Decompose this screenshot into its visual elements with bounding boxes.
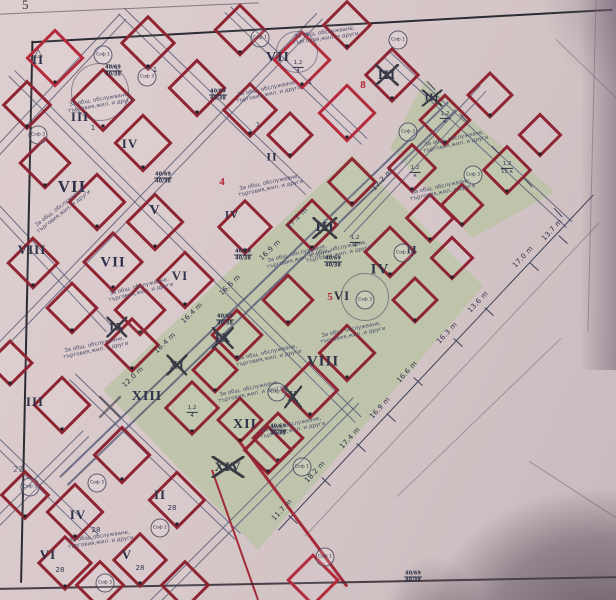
handwritten-red-number: 8 (360, 79, 366, 91)
transformer-station-label: Соф 1 (253, 36, 267, 41)
transformer-station-marker: Соф 2 (151, 519, 170, 538)
survey-point (249, 132, 252, 135)
survey-point (287, 321, 290, 324)
plot-number: II (32, 52, 44, 68)
survey-point (414, 319, 417, 322)
storey-fraction-marker-value: 1,2 (187, 405, 198, 413)
plot-ratio-marker-value: 40/69 (209, 89, 227, 96)
transformer-station-marker: Соф 3 (394, 244, 413, 263)
transformer-station-marker: Соф 3 (464, 166, 483, 185)
transformer-station-marker: Соф 3 (21, 478, 40, 497)
building-outline (2, 80, 53, 131)
storey-fraction-marker: 1,2к (440, 111, 451, 125)
plot-number: VIII (18, 242, 47, 258)
plot-ratio-marker-value: 40/69 (324, 256, 342, 263)
transformer-station-label: Соф 3 (466, 173, 480, 178)
plot-ratio-marker: 40/6940/38 (404, 571, 422, 584)
survey-point (506, 190, 509, 193)
plot-number: IV (70, 507, 86, 523)
plot-ratio-marker-value: 40/38 (210, 96, 226, 102)
storey-fraction-marker: 1,24 (350, 235, 361, 249)
plot-number: III (378, 67, 396, 83)
plot-number: X (287, 389, 299, 406)
plot-ratio-marker: 40/6940/38 (154, 172, 172, 185)
plot-number: XIII (132, 389, 162, 405)
plot-ratio-marker-value: 40/38 (155, 179, 171, 185)
transformer-station-marker: Соф 3 (29, 126, 48, 145)
transformer-station-marker: Соф 3 (96, 574, 115, 593)
transformer-station-label: Соф 3 (98, 581, 112, 586)
building-outline (0, 339, 34, 387)
survey-point (44, 184, 47, 187)
plot-number: IV (122, 136, 138, 152)
transformer-station-label: Соф 3 (401, 130, 415, 135)
storey-fraction-marker: 1,215 к (501, 161, 513, 175)
plot-number: VIII (307, 354, 339, 371)
zone-use-label: За общ. обслужване,търговия,жил. и други (236, 173, 303, 199)
plot-number: V (122, 547, 132, 563)
handwritten-red-number: 4 (219, 176, 225, 188)
transformer-station-label: Соф 1 (318, 555, 332, 560)
plot-number: VI (40, 547, 56, 563)
plot-number: III (425, 93, 440, 104)
building-outline (125, 192, 184, 251)
plot-number: IX (109, 320, 124, 335)
storey-fraction-marker: 1,2к (410, 165, 421, 179)
plot-area-number: 28 (168, 504, 177, 512)
survey-point (184, 303, 187, 306)
building-outline (322, 0, 373, 50)
survey-point (346, 136, 349, 139)
survey-point (309, 413, 312, 416)
plot-area-number: 28 (56, 566, 65, 574)
survey-point (61, 428, 64, 431)
survey-point (102, 125, 105, 128)
survey-point (131, 367, 134, 370)
survey-point (451, 276, 454, 279)
plot-ratio-marker-value: 40/38 (235, 256, 251, 262)
survey-point (176, 523, 179, 526)
dimension-tick (413, 377, 423, 386)
survey-point (191, 430, 194, 433)
plot-ratio-marker-value: 40/69 (104, 65, 122, 72)
plot-ratio-marker: 40/6940/38 (269, 424, 287, 437)
building-outline (160, 560, 211, 600)
dimension-tick (453, 338, 463, 347)
building-outline (317, 83, 376, 142)
transformer-station-marker: Соф 1 (94, 46, 113, 65)
road-measurement-label: 16.6 m (218, 273, 243, 297)
survey-point (71, 329, 74, 332)
survey-point (154, 245, 157, 248)
survey-point (24, 515, 27, 518)
dimension-tick (321, 477, 331, 486)
building-outline (45, 281, 99, 335)
building-outline (327, 157, 378, 208)
plot-ratio-marker-value: 40/69 (216, 314, 234, 321)
transformer-station-label: Соф 3 (31, 133, 45, 138)
plot-number: VII (100, 255, 126, 272)
survey-point (267, 470, 270, 473)
plot-ratio-marker-value: 40/38 (105, 72, 121, 78)
transformer-station-label: Соф 2 (270, 390, 284, 395)
survey-point (461, 223, 464, 226)
building-outline (391, 276, 439, 324)
dimension-tick (356, 443, 366, 452)
transformer-station-label: Соф 2 (153, 526, 167, 531)
plot-number: VI (172, 268, 188, 284)
survey-point (489, 114, 492, 117)
plot-area-number: 1 (91, 124, 95, 132)
plot-ratio-marker-value: 40/69 (234, 249, 252, 256)
plot-number: VI (334, 288, 350, 304)
storey-fraction-marker-value: 1,2 (350, 235, 361, 243)
plot-area-number: 1 (256, 121, 260, 129)
survey-point (9, 382, 12, 385)
survey-point (289, 154, 292, 157)
plot-number: V (149, 203, 160, 219)
transformer-station-label: Соф 1 (96, 53, 110, 58)
transformer-station-label: Соф 3 (23, 485, 37, 490)
plot-ratio-marker: 40/6940/38 (104, 65, 122, 78)
survey-point (64, 585, 67, 588)
plot-number: III (26, 394, 44, 410)
plot-ratio-marker-value: 40/69 (404, 571, 422, 578)
plot-number: XII (233, 417, 257, 433)
transformer-station-marker: Соф 3 (356, 291, 375, 310)
plan-content-layer: IIIIIIVVIIIIIIIVIIVVIIIVIIVIIXIIIXIIIXIX… (0, 0, 616, 600)
building-outline (429, 235, 474, 280)
plot-area-number: 28 (92, 526, 101, 534)
survey-point (26, 125, 29, 128)
transformer-station-marker: Соф 1 (316, 548, 335, 567)
storey-fraction-marker: 1,24 (293, 60, 304, 74)
dimension-tick (484, 307, 494, 316)
storey-fraction-marker-value: 1,2 (440, 111, 451, 119)
transformer-station-marker: Соф 3 (399, 123, 418, 142)
survey-point (391, 97, 394, 100)
plot-ratio-marker-value: 40/38 (325, 263, 341, 269)
survey-point (429, 238, 432, 241)
survey-point (239, 51, 242, 54)
photo-of-cadastral-plan: 5 △ 27 IIIIIIVVIIIIIIIVIIVVIIIVIIVIIXIII… (0, 0, 616, 600)
dimension-tick (553, 208, 562, 218)
survey-point (346, 376, 349, 379)
plot-ratio-marker: 40/6940/38 (234, 249, 252, 262)
transformer-station-marker: Соф 1 (251, 29, 270, 48)
storey-fraction-marker-value: 15 к (501, 169, 513, 175)
plot-ratio-marker: 40/6940/38 (209, 89, 227, 102)
transformer-station-marker: Соф 3 (88, 474, 107, 493)
plot-number: II (266, 150, 277, 165)
transformer-station-marker: Соф 2 (268, 383, 287, 402)
survey-point (539, 153, 542, 156)
plot-ratio-marker-value: 40/69 (269, 424, 287, 431)
plot-ratio-marker-value: 40/38 (217, 321, 233, 327)
survey-point (239, 439, 242, 442)
storey-fraction-marker-value: 4 (190, 413, 194, 419)
building-outline (217, 199, 274, 256)
handwritten-red-number: 5 (327, 291, 333, 303)
building-outline (120, 15, 177, 72)
plot-ratio-marker: 40/6940/38 (216, 314, 234, 327)
survey-point (214, 389, 217, 392)
plot-ratio-marker-value: 40/38 (405, 578, 421, 584)
transformer-station-label: Соф 1 (295, 465, 309, 470)
survey-point (351, 202, 354, 205)
building-outline (517, 112, 562, 157)
dimension-tick (288, 515, 298, 524)
storey-fraction-marker-value: 1,2 (410, 165, 421, 173)
plot-number: XIV (215, 459, 242, 475)
plot-number: III (315, 220, 334, 236)
survey-point (96, 225, 99, 228)
storey-fraction-marker: 1,24 (187, 405, 198, 419)
storey-fraction-marker-value: 1,2 (501, 161, 513, 169)
plot-area-number: 28 (136, 564, 145, 572)
plot-ratio-marker-value: 40/38 (270, 431, 286, 437)
transformer-station-marker: Соф 1 (389, 31, 408, 50)
survey-point (139, 582, 142, 585)
storey-fraction-marker-value: 4 (353, 243, 357, 249)
dimension-tick (386, 413, 396, 422)
plot-ratio-marker: 40/6940/38 (324, 256, 342, 269)
building-outline (466, 71, 514, 119)
transformer-station-label: Соф 3 (90, 481, 104, 486)
transformer-station-label: Соф 3 (396, 251, 410, 256)
dimension-tick (523, 178, 532, 188)
building-outline (261, 273, 315, 327)
dimension-tick (529, 262, 539, 271)
storey-fraction-marker-value: к (443, 119, 446, 125)
plot-number: IV (225, 209, 239, 221)
transformer-station-label: Соф 3 (358, 298, 372, 303)
plot-area-number: 1 (153, 66, 157, 74)
plot-area-number: 1 (308, 78, 312, 86)
survey-point (142, 166, 145, 169)
survey-point (196, 111, 199, 114)
plot-ratio-marker-value: 40/69 (154, 172, 172, 179)
storey-fraction-marker-value: к (413, 173, 416, 179)
survey-point (346, 45, 349, 48)
transformer-station-label: Соф 1 (391, 38, 405, 43)
survey-point (32, 284, 35, 287)
survey-point (54, 81, 57, 84)
plot-number: II (154, 487, 166, 503)
dimension-tick (558, 235, 568, 244)
storey-fraction-marker-value: 1,2 (293, 60, 304, 68)
storey-fraction-marker-value: 4 (296, 68, 300, 74)
plot-number: VII (266, 50, 290, 66)
plot-number: IV (371, 262, 390, 279)
plot-number: IX (215, 330, 231, 346)
transformer-station-label: Соф 3 (140, 75, 154, 80)
survey-point (112, 286, 115, 289)
plot-number: XI (169, 358, 184, 373)
survey-point (121, 478, 124, 481)
